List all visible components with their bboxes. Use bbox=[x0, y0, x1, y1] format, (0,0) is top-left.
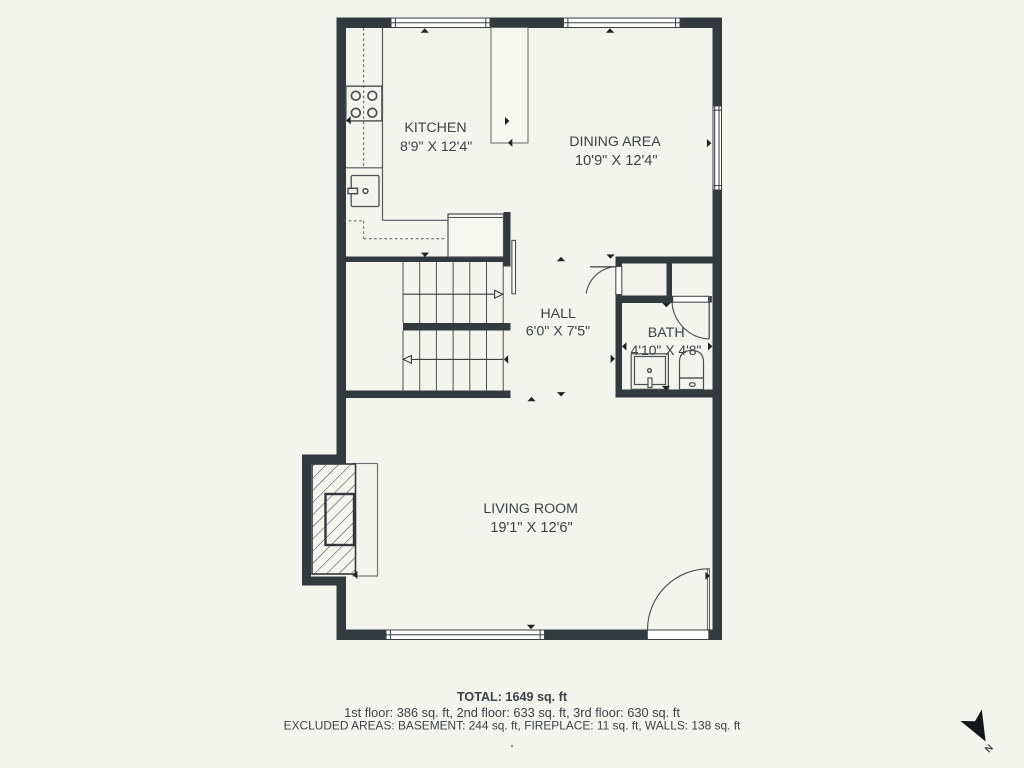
svg-text:4'10" X 4'8": 4'10" X 4'8" bbox=[631, 342, 702, 358]
svg-text:HALL: HALL bbox=[540, 306, 576, 322]
svg-text:10'9" X 12'4": 10'9" X 12'4" bbox=[575, 153, 657, 169]
svg-text:8'9" X 12'4": 8'9" X 12'4" bbox=[400, 139, 472, 155]
svg-text:TOTAL: 1649 sq. ft: TOTAL: 1649 sq. ft bbox=[457, 690, 568, 704]
svg-text:6'0" X 7'5": 6'0" X 7'5" bbox=[526, 324, 590, 340]
svg-text:EXCLUDED AREAS: BASEMENT: 244: EXCLUDED AREAS: BASEMENT: 244 sq. ft, FI… bbox=[284, 719, 741, 733]
svg-text:1st floor: 386 sq. ft, 2nd flo: 1st floor: 386 sq. ft, 2nd floor: 633 sq… bbox=[344, 705, 680, 720]
svg-text:KITCHEN: KITCHEN bbox=[404, 120, 466, 136]
svg-text:BATH: BATH bbox=[648, 325, 685, 341]
svg-text:LIVING ROOM: LIVING ROOM bbox=[483, 501, 578, 517]
svg-text:19'1" X 12'6": 19'1" X 12'6" bbox=[490, 520, 572, 536]
svg-text:DINING AREA: DINING AREA bbox=[569, 134, 661, 150]
